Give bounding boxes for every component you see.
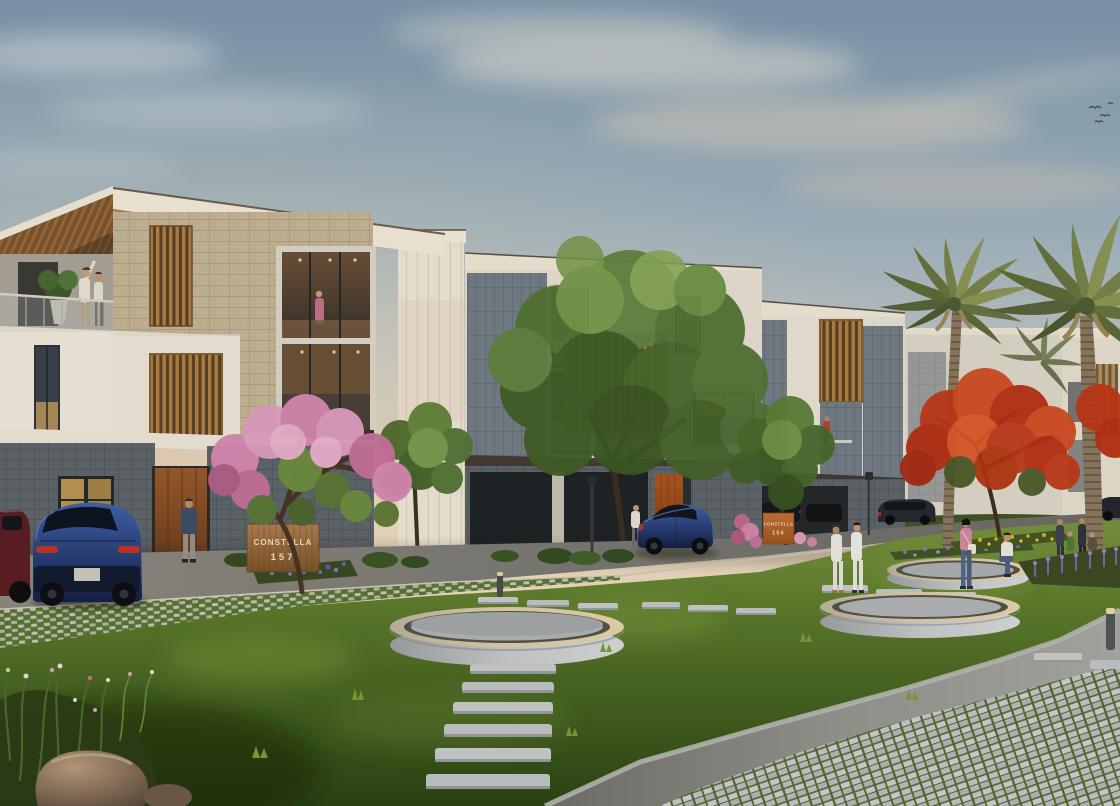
- upper-louver-strip: [150, 226, 192, 326]
- sign-156-name: CONSTELLA: [763, 522, 793, 527]
- sign-board-156: [763, 513, 794, 544]
- ring-planter-near: [820, 592, 1020, 638]
- sunset-reflection: [398, 300, 464, 420]
- dark-car-right-1: [878, 499, 936, 525]
- bollard-light-2: [1106, 608, 1115, 650]
- sign-157-name: CONSTELLA: [254, 538, 313, 547]
- unit-sign-left: CONSTELLA 157: [247, 524, 319, 572]
- white-tower: [396, 230, 466, 562]
- narrow-window: [34, 345, 60, 441]
- render-canvas: CONSTELLA 156 CONSTELLA 157: [0, 0, 1120, 806]
- maroon-car: [0, 510, 31, 603]
- mid-louver-panel: [150, 354, 222, 442]
- sign-156-number: 156: [772, 531, 785, 537]
- unit-sign-right: CONSTELLA 156: [763, 513, 794, 544]
- carport-column: [552, 472, 564, 548]
- scene-rendering: CONSTELLA 156 CONSTELLA 157: [0, 0, 1120, 806]
- right-louver-box: [820, 320, 862, 402]
- ring-planter-center: [390, 607, 624, 666]
- blue-suv-left: [32, 503, 148, 609]
- sign-157-number: 157: [271, 552, 296, 563]
- bollard-light-1: [497, 572, 503, 597]
